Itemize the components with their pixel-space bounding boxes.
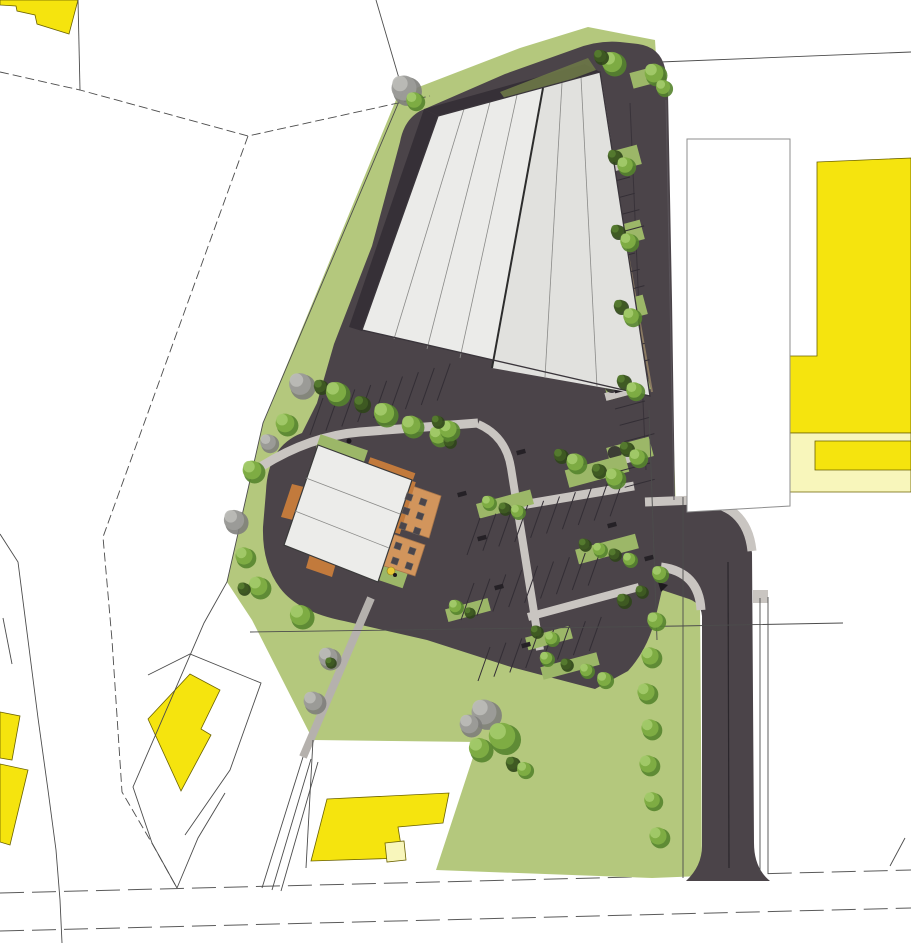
site-plan-canvas [0, 0, 911, 943]
site-plan-page [0, 0, 911, 943]
neighbor-building-east-annex-core [815, 441, 911, 470]
curb-block-road-top [753, 590, 768, 603]
parcel-outline-rectangle [687, 139, 790, 512]
neighbor-building-south-annex [385, 841, 406, 862]
dark-marker [347, 439, 352, 444]
dark-marker [393, 573, 397, 577]
